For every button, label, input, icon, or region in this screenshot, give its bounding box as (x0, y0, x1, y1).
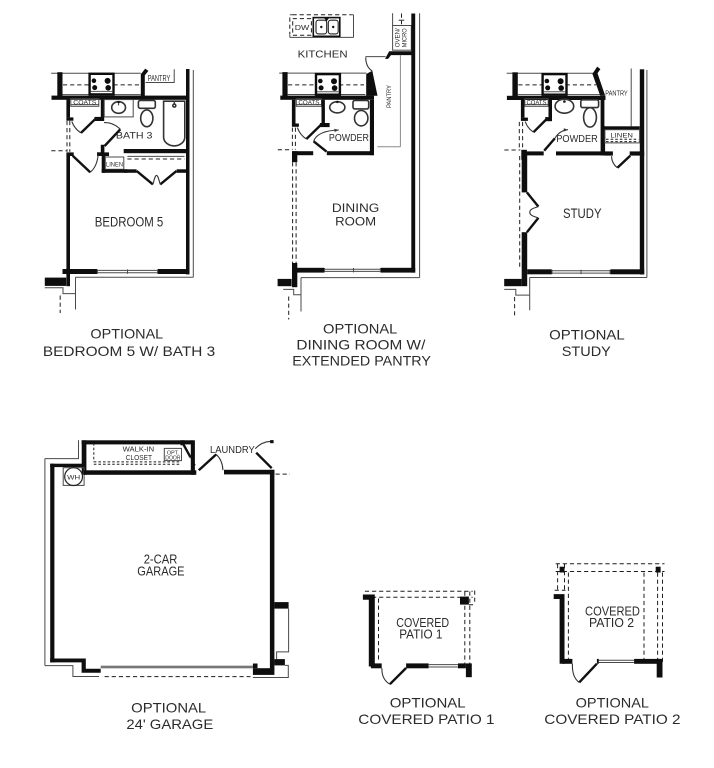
svg-text:LINEN: LINEN (610, 132, 633, 139)
svg-text:OPTIONAL: OPTIONAL (576, 695, 650, 711)
svg-text:PATIO 1: PATIO 1 (399, 628, 442, 642)
svg-text:24' GARAGE: 24' GARAGE (126, 716, 213, 732)
svg-text:BATH 3: BATH 3 (116, 131, 153, 142)
svg-text:OPTIONAL: OPTIONAL (131, 699, 206, 715)
svg-text:OPTIONAL: OPTIONAL (549, 326, 625, 342)
svg-text:PANTRY: PANTRY (148, 74, 171, 83)
svg-text:OPTIONAL: OPTIONAL (323, 320, 398, 336)
svg-text:OVEN/: OVEN/ (395, 28, 401, 47)
svg-text:BEDROOM 5 W/ BATH 3: BEDROOM 5 W/ BATH 3 (43, 343, 216, 359)
svg-text:OPTIONAL: OPTIONAL (390, 695, 466, 711)
svg-text:COATS: COATS (73, 99, 96, 106)
svg-text:DINING ROOM W/: DINING ROOM W/ (296, 337, 425, 353)
svg-text:COVERED PATIO 2: COVERED PATIO 2 (544, 711, 680, 727)
svg-text:POWDER: POWDER (556, 133, 598, 145)
svg-text:BEDROOM 5: BEDROOM 5 (95, 214, 164, 229)
svg-text:COATS: COATS (527, 99, 547, 106)
svg-text:PATIO 2: PATIO 2 (589, 616, 634, 630)
svg-text:MICRO: MICRO (402, 28, 408, 47)
svg-text:PANTRY: PANTRY (386, 84, 393, 108)
svg-text:COATS: COATS (298, 99, 319, 106)
svg-text:WH: WH (67, 474, 80, 481)
svg-text:OPTIONAL: OPTIONAL (90, 325, 163, 341)
svg-text:DINING: DINING (332, 201, 380, 215)
svg-text:LINEN: LINEN (106, 161, 123, 168)
svg-text:GARAGE: GARAGE (137, 564, 184, 578)
svg-text:COVERED PATIO 1: COVERED PATIO 1 (358, 711, 494, 727)
svg-text:DW: DW (295, 23, 310, 32)
svg-text:POWDER: POWDER (329, 132, 369, 144)
svg-text:DOOR: DOOR (165, 456, 180, 462)
svg-text:PANTRY: PANTRY (605, 91, 628, 98)
svg-text:STUDY: STUDY (562, 343, 612, 359)
svg-text:CLOSET: CLOSET (126, 453, 153, 462)
svg-text:EXTENDED PANTRY: EXTENDED PANTRY (292, 353, 431, 369)
svg-text:STUDY: STUDY (563, 206, 602, 221)
svg-text:LAUNDRY: LAUNDRY (210, 445, 255, 456)
svg-text:ROOM: ROOM (335, 214, 376, 228)
svg-text:KITCHEN: KITCHEN (298, 49, 348, 61)
